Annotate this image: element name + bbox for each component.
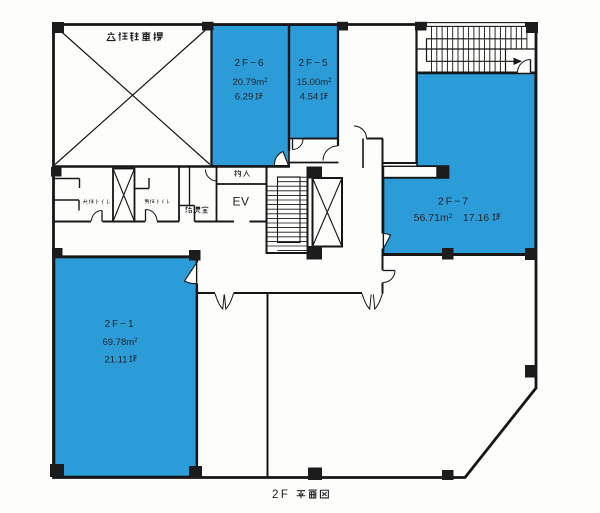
svg-text:4.54: 4.54 xyxy=(300,92,319,103)
svg-text:2F−6: 2F−6 xyxy=(234,58,265,69)
svg-text:15.00m2: 15.00m2 xyxy=(296,77,332,88)
svg-text:2F−1: 2F−1 xyxy=(104,319,135,330)
svg-text:2F: 2F xyxy=(272,489,290,501)
svg-text:2F−5: 2F−5 xyxy=(298,58,329,69)
svg-text:6.29: 6.29 xyxy=(235,92,254,103)
svg-text:EV: EV xyxy=(232,195,249,209)
svg-text:17.16: 17.16 xyxy=(463,212,489,224)
svg-text:69.78m2: 69.78m2 xyxy=(102,337,138,348)
svg-text:56.71m2: 56.71m2 xyxy=(414,212,453,224)
svg-text:20.79m2: 20.79m2 xyxy=(232,77,268,88)
svg-text:21.11: 21.11 xyxy=(104,355,127,366)
svg-text:2F−7: 2F−7 xyxy=(438,196,470,208)
